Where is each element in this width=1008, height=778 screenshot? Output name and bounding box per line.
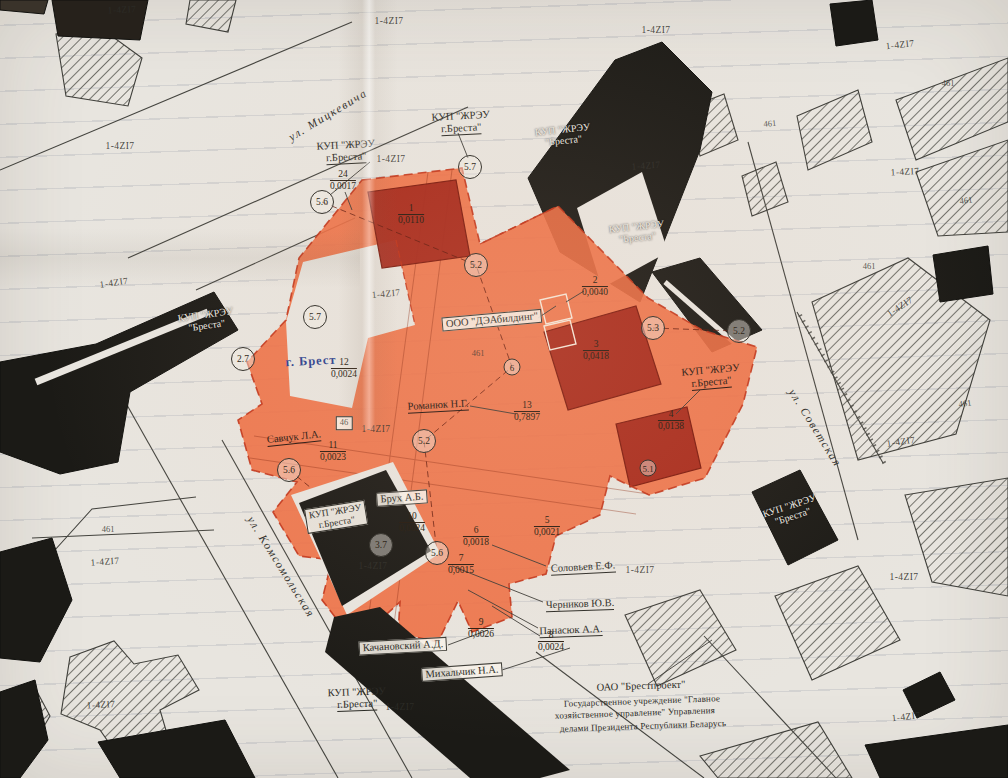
- parcel-area: 0,7897: [514, 412, 540, 423]
- parcel-fraction: 80,0024: [538, 631, 564, 653]
- parcel-fraction: 70,0015: [448, 554, 474, 576]
- parcel-fraction: 60,0018: [463, 526, 489, 548]
- parcel-fraction: 110,0023: [320, 441, 346, 463]
- owner-line: КУП "ЖРЭУ: [316, 138, 375, 152]
- parcel-fraction: 90,0026: [468, 618, 494, 640]
- owner-line: г.Бреста": [441, 121, 482, 136]
- owner-line: г.Бреста": [337, 697, 378, 711]
- parcel-area: 0,0024: [399, 523, 425, 534]
- survey-point: 5.1: [640, 460, 657, 477]
- parcel-area: 0,0023: [320, 452, 346, 463]
- building-footprint-hatched: [775, 566, 900, 680]
- quarter-code: 1-4ZI7: [86, 699, 115, 711]
- parcel-number: 12: [331, 358, 357, 369]
- owner-line: КУП "ЖРЭУ: [327, 685, 386, 698]
- parcel-area: 0,0015: [448, 565, 474, 576]
- survey-point: 6: [504, 359, 521, 376]
- parcel-number: 10: [399, 512, 425, 523]
- building-footprint-hatched: [625, 590, 736, 686]
- building-mark-small: 46: [336, 416, 353, 430]
- quarter-code: 1-4ZI7: [890, 572, 919, 583]
- parcel-area: 0,0017: [330, 181, 356, 192]
- survey-point: 5.7: [303, 305, 327, 329]
- building-mark: 461: [959, 195, 973, 206]
- parcel-fraction: 50,0021: [534, 516, 560, 538]
- parcel-number: 1: [398, 204, 424, 215]
- quarter-code: 1-4ZI7: [642, 25, 671, 36]
- quarter-code: 1-4ZI7: [377, 154, 406, 165]
- building-mark: 461: [863, 262, 876, 272]
- survey-point: 3.7: [369, 533, 393, 557]
- parcel-area: 0,0418: [583, 351, 609, 362]
- survey-point: 2.7: [231, 347, 255, 371]
- building-footprint-black: [830, 0, 878, 46]
- parcel-area: 0,0024: [331, 369, 357, 380]
- parcel-number: 9: [468, 618, 494, 629]
- parcel-fraction: 20,0040: [582, 276, 608, 298]
- survey-point: 5.6: [425, 541, 449, 565]
- quarter-code: 1-4ZI7: [90, 556, 119, 569]
- survey-point: 5.3: [641, 316, 665, 340]
- parcel-number: 6: [463, 526, 489, 537]
- parcel-area: 0,0026: [468, 629, 494, 640]
- owner-line: КУП "ЖРЭУ: [431, 109, 490, 123]
- quarter-code: 1-4ZI7: [106, 141, 135, 152]
- parcel-area: 0,0021: [534, 527, 560, 538]
- building-footprint-hatched: [700, 722, 852, 778]
- parcel-area: 0,0138: [658, 421, 684, 432]
- quarter-code: 1-4ZI7: [359, 561, 388, 572]
- survey-point: 5.7: [458, 155, 482, 179]
- building-footprint-hatched: [896, 58, 1008, 160]
- parcel-area: 0,0018: [463, 537, 489, 548]
- map-canvas: [0, 0, 1008, 778]
- parcel-number: 4: [658, 410, 684, 421]
- paper-corner-shadow: [0, 0, 48, 14]
- quarter-code: 1-4ZI7: [631, 160, 660, 173]
- parcel-fraction: 130,7897: [514, 401, 540, 423]
- building-mark: 461: [472, 349, 485, 359]
- quarter-line: [32, 530, 214, 538]
- building-footprint-hatched: [905, 478, 1008, 596]
- owner-line: Черников Ю.В.: [546, 597, 615, 612]
- owner-label-zhreu: КУП "ЖРЭУ г.Бреста": [327, 685, 386, 711]
- building-footprint-black: [0, 538, 72, 662]
- owner-label-zhreu: КУП "ЖРЭУ г.Бреста": [316, 138, 375, 165]
- parcel-area: 0,0110: [398, 215, 424, 226]
- parcel-number: 2: [582, 276, 608, 287]
- cadastral-map-photo: 1-4ZI7 1-4ZI7 1-4ZI7 1-4ZI7 1-4ZI7 1-4ZI…: [0, 0, 1008, 778]
- building-mark: 461: [763, 119, 777, 130]
- building-mark: 461: [102, 525, 115, 535]
- parcel-area: 0,0024: [538, 642, 564, 653]
- owner-label-chernikov: Черников Ю.В.: [546, 597, 615, 611]
- quarter-code: 1-4ZI7: [362, 424, 391, 435]
- parcel-orange-area: [238, 168, 757, 643]
- building-footprint-hatched: [742, 162, 788, 216]
- parcel-number: 13: [514, 401, 540, 412]
- parcel-fraction: 10,0110: [398, 204, 424, 226]
- parcel-number: 3: [583, 340, 609, 351]
- building-footprint-black: [865, 725, 1008, 778]
- owner-label-zhreu: КУП "ЖРЭУ г.Бреста": [431, 109, 490, 136]
- parcel-number: 8: [538, 631, 564, 642]
- survey-point: 5.2: [727, 319, 751, 343]
- quarter-code: 1-4ZI7: [626, 565, 655, 576]
- survey-point: 5.2: [412, 429, 436, 453]
- parcel-area: 0,0040: [582, 287, 608, 298]
- survey-point: 5.2: [464, 253, 488, 277]
- building-footprint-black: [933, 246, 993, 302]
- parcel-number: 11: [320, 441, 346, 452]
- parcel-fraction: 40,0138: [658, 410, 684, 432]
- building-mark: 461: [942, 79, 955, 89]
- building-footprint-hatched: [186, 0, 236, 32]
- parcel-fraction: 30,0418: [583, 340, 609, 362]
- owner-line: г.Бреста": [326, 150, 367, 165]
- owner-label-solovyev: Соловьев Е.Ф.: [550, 559, 615, 574]
- quarter-code: 1-4ZI7: [375, 16, 404, 27]
- building-footprint-hatched: [797, 90, 872, 170]
- quarter-line: [0, 22, 352, 170]
- parcel-number: 24: [330, 170, 356, 181]
- parcel-fraction: 240,0017: [330, 170, 356, 192]
- parcel-number: 5: [534, 516, 560, 527]
- quarter-code: 1-4ZI7: [386, 702, 415, 713]
- survey-point: 5.6: [277, 458, 301, 482]
- city-label: г. Брест: [285, 353, 337, 370]
- parcel-fraction: 100,0024: [399, 512, 425, 534]
- quarter-code: 1-4ZI7: [107, 4, 136, 16]
- quarter-code: 1-4ZI7: [890, 166, 919, 178]
- parcel-number: 7: [448, 554, 474, 565]
- survey-point: 5.6: [310, 190, 334, 214]
- building-footprint-black: [0, 680, 48, 778]
- allocated-parcel-overlay: [238, 168, 757, 643]
- parcel-fraction: 120,0024: [331, 358, 357, 380]
- building-mark: 461: [958, 398, 972, 409]
- owner-label-romanyuk: Романюк Н.Г.: [407, 398, 468, 413]
